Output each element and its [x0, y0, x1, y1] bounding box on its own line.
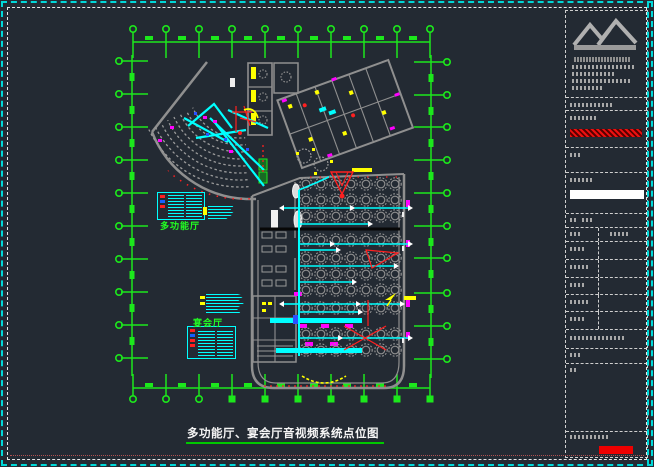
grid-axis-bubble — [295, 396, 302, 403]
round-table-top — [332, 304, 340, 312]
hatched-text — [570, 265, 589, 269]
round-fixture — [281, 72, 291, 82]
hatched-text — [570, 368, 578, 372]
grid-dim-text — [429, 205, 434, 213]
cyan-fixture — [328, 109, 336, 115]
blue-device-icon — [246, 148, 249, 151]
titleblock-footer-section — [566, 431, 647, 457]
round-table-top — [317, 330, 325, 338]
round-table-top — [332, 236, 340, 244]
red-tick-icon — [160, 195, 165, 198]
round-table-top — [391, 196, 399, 204]
white-arrowhead — [408, 205, 413, 211]
round-table-top — [332, 212, 340, 220]
round-table-top — [362, 180, 370, 188]
grid-axis-bubble — [295, 26, 301, 32]
round-table-top — [302, 330, 310, 338]
red-dot — [303, 103, 307, 107]
magenta-device-icon — [331, 77, 337, 82]
titleblock-project-section — [566, 110, 647, 147]
legend-table-banquet — [187, 326, 236, 359]
hatched-text — [572, 72, 614, 76]
round-table-top — [377, 286, 385, 294]
round-table-top — [302, 196, 310, 204]
round-table-top — [377, 270, 385, 278]
titleblock-label-row — [566, 259, 647, 277]
yellow-device-icon — [262, 302, 266, 305]
magenta-device-icon — [321, 324, 329, 328]
hatched-text — [570, 116, 596, 120]
grid-axis-bubble — [394, 396, 401, 403]
white-device — [402, 246, 404, 251]
white-arrowhead — [408, 241, 413, 247]
hatched-text — [570, 232, 580, 236]
titleblock-row — [566, 329, 647, 348]
booth-seat — [262, 266, 272, 272]
grid-axis-bubble — [444, 323, 450, 329]
grid-dim-text — [429, 238, 434, 246]
grid-dim-text — [130, 337, 135, 345]
round-table-top — [302, 254, 310, 262]
grid-dim-text — [130, 304, 135, 312]
blue-device-icon — [293, 315, 298, 324]
round-fixture — [259, 116, 267, 124]
grid-dim-text — [130, 73, 135, 81]
yellow-device-icon — [288, 104, 293, 109]
grid-axis-bubble — [130, 26, 136, 32]
grid-axis-bubble — [427, 396, 434, 403]
magenta-device-icon — [389, 126, 395, 131]
legend-hatch-text — [198, 329, 215, 356]
round-fixture — [259, 93, 267, 101]
round-table-top — [302, 286, 310, 294]
grid-dim-text — [429, 338, 434, 346]
titleblock-notes-section — [566, 363, 647, 431]
hatched-text — [574, 57, 630, 62]
titleblock-name-section — [566, 172, 647, 213]
legend-hatch-text — [217, 329, 234, 356]
legend-hatch-text — [186, 195, 202, 217]
grid-dim-text — [130, 139, 135, 147]
hatched-text — [570, 283, 584, 287]
round-table-top — [391, 270, 399, 278]
blue-tick-icon — [190, 334, 195, 337]
column-divider — [598, 312, 599, 329]
red-stamp-bar — [599, 446, 633, 454]
blue-device-icon — [206, 133, 209, 136]
yellow-device-icon — [262, 309, 266, 312]
hatched-text — [582, 218, 592, 222]
hatched-text — [570, 336, 626, 340]
titleblock-label-row — [566, 277, 647, 295]
grid-dim-text — [130, 205, 135, 213]
floor-plan-svg — [0, 0, 654, 467]
grid-axis-bubble — [444, 124, 450, 130]
grid-dim-text — [178, 383, 186, 387]
round-table-top — [362, 270, 370, 278]
red-dot — [239, 132, 242, 135]
grid-dim-text — [130, 172, 135, 180]
hatched-text — [572, 86, 602, 90]
equipment-rack — [271, 210, 278, 230]
cable-tray — [270, 318, 362, 323]
yellow-device-icon — [200, 296, 205, 299]
hatched-text — [570, 247, 584, 251]
grid-axis-bubble — [361, 26, 367, 32]
yellow-device-icon — [268, 302, 272, 305]
yellow-dashed-arc — [302, 376, 346, 383]
yellow-chair-icon — [314, 172, 317, 175]
hatched-text — [570, 300, 589, 304]
yellow-chair-icon — [296, 152, 299, 155]
grid-dim-text — [429, 107, 434, 115]
grid-dim-text — [211, 36, 219, 40]
grid-dim-text — [130, 271, 135, 279]
booth-seat — [262, 246, 272, 252]
hall-wall-arc — [152, 132, 246, 199]
hatched-text — [610, 232, 628, 236]
yellow-bar — [352, 168, 372, 172]
round-table-top — [302, 304, 310, 312]
grid-axis-bubble — [444, 190, 450, 196]
lounge-area — [274, 63, 333, 175]
round-fixture — [259, 70, 267, 78]
grid-dim-text — [244, 383, 252, 387]
grid-dim-text — [409, 36, 417, 40]
hatched-text — [570, 178, 592, 182]
round-table-top — [377, 196, 385, 204]
cad-sheet: 多功能厅 宴会厅 多功能厅、宴会厅音视频系统点位图 — [0, 0, 654, 467]
red-tick-icon — [190, 344, 195, 347]
cable-tray — [276, 348, 362, 353]
booth-seat — [276, 246, 286, 252]
round-table-top — [377, 180, 385, 188]
titleblock-header-row — [566, 227, 647, 241]
title-block — [565, 10, 648, 458]
yellow-device-icon — [200, 302, 205, 305]
round-table-top — [362, 286, 370, 294]
grid-axis-bubble — [196, 26, 202, 32]
drawing-title: 多功能厅、宴会厅音视频系统点位图 — [187, 425, 379, 443]
grid-dim-text — [343, 36, 351, 40]
round-table-top — [362, 236, 370, 244]
corridor-room — [274, 63, 298, 93]
titleblock-row — [566, 97, 647, 110]
round-table-top — [391, 180, 399, 188]
hatched-text — [570, 190, 644, 199]
yellow-device-icon — [203, 207, 207, 215]
yellow-device-icon — [342, 131, 347, 136]
round-table-top — [317, 304, 325, 312]
round-table-top — [302, 270, 310, 278]
white-device — [230, 78, 235, 87]
booth-seat — [276, 266, 286, 272]
hatched-text — [570, 353, 580, 357]
red-symbols — [264, 172, 404, 386]
round-table-top — [347, 212, 355, 220]
yellow-arrow-icon — [404, 296, 416, 300]
magenta-device-icon — [330, 342, 338, 346]
grid-dim-text — [178, 36, 186, 40]
sheet-border-red-dotted — [10, 455, 644, 456]
red-tick-icon — [160, 205, 165, 208]
blue-tick-icon — [160, 200, 165, 203]
column-divider — [598, 260, 599, 277]
round-table-top — [317, 236, 325, 244]
multifunction-hall-label: 多功能厅 — [160, 219, 200, 232]
booth-seat — [276, 280, 286, 286]
magenta-device-icon — [158, 139, 162, 142]
round-table-top — [347, 286, 355, 294]
round-table-top — [362, 346, 370, 354]
hall-wall — [152, 62, 207, 132]
round-table-top — [347, 236, 355, 244]
service-wing — [277, 58, 413, 168]
blue-device-icon — [224, 138, 227, 141]
titleblock-label-row — [566, 294, 647, 312]
grid-axis-bubble — [444, 356, 450, 362]
grid-axis-bubble — [130, 396, 136, 402]
hatched-text — [570, 153, 582, 157]
round-table-top — [317, 270, 325, 278]
grid-axis-bubble — [262, 396, 269, 403]
column-divider — [598, 295, 599, 312]
grid-axis-bubble — [163, 26, 169, 32]
magenta-device-icon — [203, 116, 207, 119]
magenta-device-icon — [213, 120, 217, 123]
white-device — [402, 212, 404, 217]
round-table-top — [317, 286, 325, 294]
grid-dim-text — [429, 305, 434, 313]
round-table-top — [317, 212, 325, 220]
titleblock-label-row — [566, 241, 647, 259]
grid-dim-text — [429, 139, 434, 147]
grid-axis-bubble — [262, 26, 268, 32]
grid-axis-bubble — [394, 26, 400, 32]
round-table-top — [362, 212, 370, 220]
titleblock-row — [566, 147, 647, 172]
grid-dim-text — [429, 74, 434, 82]
white-arrowhead — [408, 335, 413, 341]
yellow-chair-icon — [330, 160, 333, 163]
grid-dim-text — [277, 36, 285, 40]
legend-table-multifunction — [157, 192, 205, 220]
yellow-rack-icon — [251, 90, 256, 102]
grid-dim-text — [429, 172, 434, 180]
grid-axis-bubble — [196, 396, 202, 402]
mountain-logo-icon — [566, 11, 647, 53]
legend-hatch-text — [168, 195, 184, 217]
round-table-top — [391, 346, 399, 354]
round-table-top — [317, 254, 325, 262]
blue-device-icon — [194, 112, 197, 115]
legend-tick-column — [160, 195, 166, 217]
legend-tick-column — [190, 329, 196, 356]
round-table-top — [332, 286, 340, 294]
grid-dim-text — [145, 36, 153, 40]
round-table-top — [347, 270, 355, 278]
magenta-device-icon — [170, 126, 174, 129]
lounge-table — [314, 157, 328, 171]
white-device — [402, 338, 404, 343]
grid-dim-text — [409, 383, 417, 387]
white-arrowhead — [352, 279, 357, 285]
grid-axis-bubble — [444, 290, 450, 296]
round-table-top — [317, 196, 325, 204]
red-dot — [340, 194, 344, 198]
white-arrowhead — [279, 301, 284, 307]
seat-row-arc — [188, 34, 292, 138]
magenta-device-icon — [229, 150, 233, 153]
grid-axis-bubble — [328, 396, 335, 403]
grid-dim-text — [145, 383, 153, 387]
grid-axis-bubble — [229, 26, 235, 32]
titleblock-row — [566, 213, 647, 227]
hatched-text — [570, 435, 610, 439]
round-table-top — [391, 236, 399, 244]
round-table-top — [332, 196, 340, 204]
grid-dim-text — [130, 106, 135, 114]
round-table-top — [332, 254, 340, 262]
round-table-top — [302, 236, 310, 244]
grid-axis-bubble — [163, 396, 169, 402]
round-table-top — [332, 270, 340, 278]
red-tick-icon — [190, 329, 195, 332]
column-divider — [598, 242, 599, 259]
yellow-device-icon — [349, 90, 354, 95]
round-table-top — [391, 304, 399, 312]
sheet-border-right — [647, 2, 649, 465]
grid-axis-bubble — [444, 223, 450, 229]
hatched-text — [570, 103, 612, 107]
column-divider — [598, 228, 599, 241]
grid-axis-bubble — [444, 157, 450, 163]
yellow-rack-icon — [251, 67, 256, 79]
seat-row-arc — [160, 6, 320, 166]
titleblock-row — [566, 348, 647, 363]
round-table-top — [391, 330, 399, 338]
titleblock-logo-section — [566, 11, 647, 97]
grid-axis-bubble — [328, 26, 334, 32]
round-table-top — [362, 304, 370, 312]
grid-axis-bubble — [444, 255, 450, 261]
magenta-device-icon — [394, 92, 400, 97]
white-arrowhead — [279, 205, 284, 211]
round-table-top — [377, 212, 385, 220]
round-table-top — [377, 304, 385, 312]
hatched-text — [572, 79, 630, 83]
round-table-top — [347, 254, 355, 262]
grid-dim-text — [310, 36, 318, 40]
booth-seat — [262, 280, 272, 286]
round-table-top — [347, 304, 355, 312]
magenta-device-icon — [406, 300, 410, 307]
yellow-device-icon — [314, 90, 319, 95]
grid-axis-bubble — [229, 396, 236, 403]
grid-dim-text — [130, 238, 135, 246]
round-table-top — [347, 196, 355, 204]
round-table-top — [377, 236, 385, 244]
titleblock-label-row — [566, 311, 647, 329]
grid-dim-text — [376, 36, 384, 40]
round-table-top — [362, 196, 370, 204]
grid-dim-text — [244, 36, 252, 40]
hatched-text — [570, 218, 578, 222]
red-dot — [351, 113, 355, 117]
booth-seat — [276, 232, 286, 238]
hatched-text — [570, 129, 642, 137]
round-table-top — [302, 212, 310, 220]
white-arrowhead — [368, 221, 373, 227]
grid-axis-bubble — [444, 92, 450, 98]
title-underline — [186, 442, 384, 444]
round-table-top — [391, 212, 399, 220]
booth-seat — [262, 232, 272, 238]
grid-dim-text — [211, 383, 219, 387]
grid-axis-bubble — [444, 59, 450, 65]
banquet-hall-label: 宴会厅 — [193, 316, 223, 329]
round-table-top — [377, 330, 385, 338]
grid-dim-text — [429, 270, 434, 278]
grid-axis-bubble — [427, 26, 433, 32]
round-table-top — [391, 286, 399, 294]
red-tick-icon — [190, 339, 195, 342]
grid-axis-bubble — [361, 396, 368, 403]
column-divider — [598, 278, 599, 295]
hatched-text — [572, 65, 634, 69]
white-arrowhead — [338, 335, 343, 341]
yellow-chair-icon — [312, 148, 315, 151]
hatched-text — [570, 317, 584, 321]
